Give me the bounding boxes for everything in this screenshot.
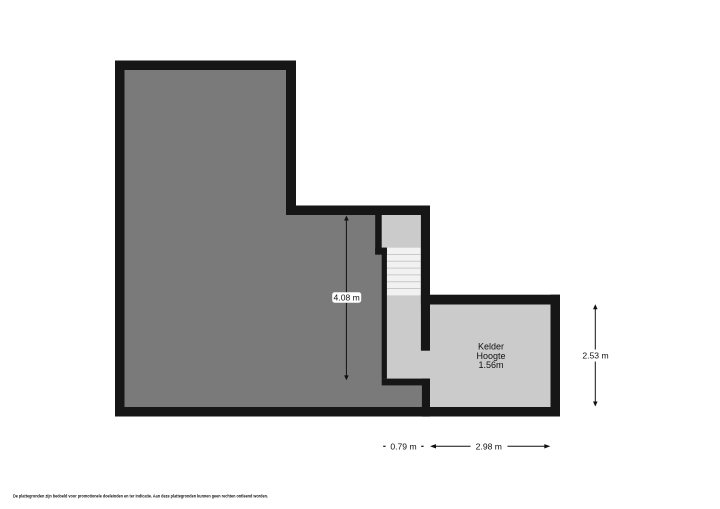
svg-text:De plattegronden zijn bedoeld: De plattegronden zijn bedoeld voor promo…: [13, 494, 268, 499]
svg-text:4.08 m: 4.08 m: [334, 293, 360, 303]
svg-text:1.56m: 1.56m: [478, 360, 503, 370]
svg-text:0.79 m: 0.79 m: [390, 441, 416, 451]
svg-text:2.98 m: 2.98 m: [476, 441, 502, 451]
svg-text:2.53 m: 2.53 m: [582, 351, 608, 361]
